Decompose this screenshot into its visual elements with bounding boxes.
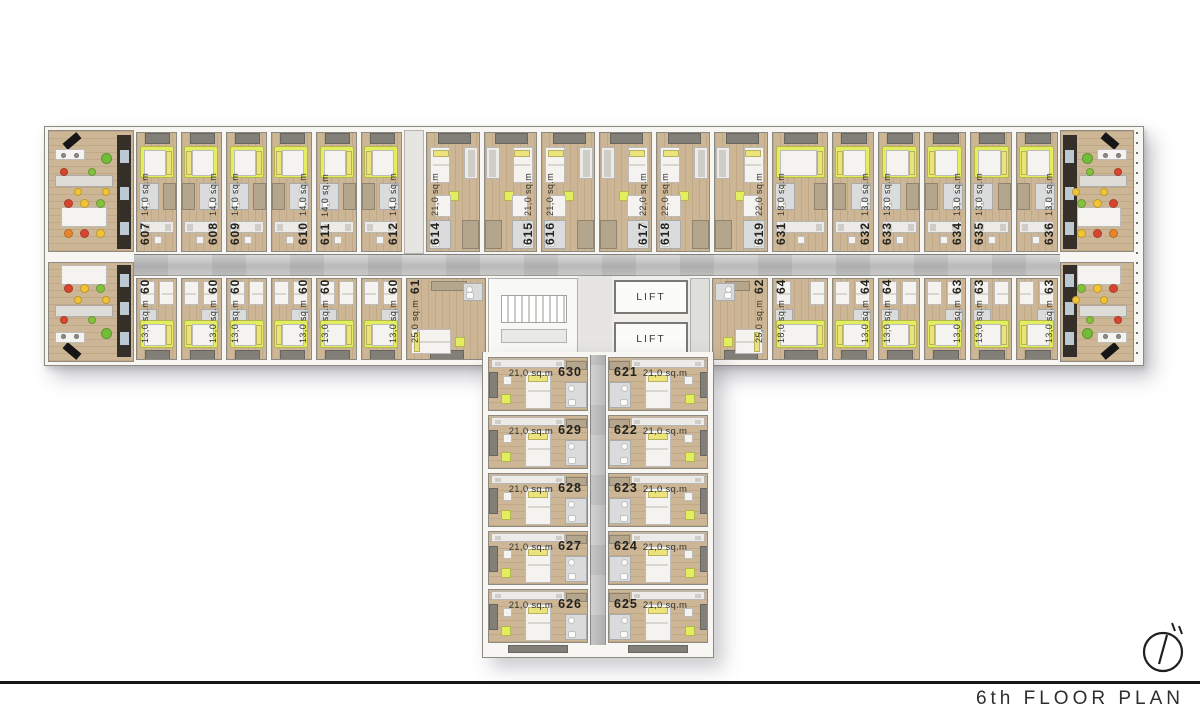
floor-plan-page: 60714,0 sq.m60814,0 sq.m60914,0 sq.m6101… [0,0,1200,719]
room-area: 21,0 sq.m [509,484,553,495]
toilet [568,573,576,580]
room-label: 21,0 sq.m627 [494,539,582,553]
bathroom [609,614,631,640]
room-label: 18,0 sq.m642 [774,282,788,346]
room-616: 61621,0 sq.m [541,132,595,252]
room-area: 13,0 sq.m [230,300,240,343]
room-label: 13,0 sq.m603 [296,282,310,346]
pillow [909,151,915,175]
room-label: 21,0 sq.m630 [494,365,582,379]
side-desk [55,149,85,160]
blanket [646,564,668,566]
chair-dot [1109,199,1118,208]
lift-bank: LIFTLIFT [612,276,690,362]
chair-dot [64,199,73,208]
toilet [620,457,628,464]
long-table [55,175,113,187]
bed [249,281,264,305]
room-label: 13,0 sq.m641 [858,282,872,346]
room-625: 62521,0 sq.m [608,589,708,643]
room-area: 21,0 sq.m [509,426,553,437]
room-label: 13,0 sq.m604 [228,282,242,346]
room-label: 21,0 sq.m629 [494,423,582,437]
bed [274,281,289,305]
horizontal-wing-interior: 60714,0 sq.m60814,0 sq.m60914,0 sq.m6101… [48,130,1140,362]
room-621: 62121,0 sq.m [608,357,708,411]
blanket [342,293,353,295]
wardrobe [577,220,594,249]
desk-item [930,224,936,231]
stem-balcony-recess [508,645,568,653]
room-label: 61822,0 sq.m [658,146,672,248]
chair [940,236,948,244]
dining-table [1077,207,1121,227]
chair [287,236,295,244]
room-number: 638 [972,278,986,294]
lounge-furniture [49,263,133,361]
chair-dot [1077,284,1086,293]
room-number: 629 [558,423,582,437]
pillow [1021,325,1027,345]
floor-plan-title: 6th FLOOR PLAN [976,688,1184,710]
desk-dot [1116,153,1121,158]
blanket [528,622,550,624]
room-area: 21,0 sq.m [545,173,555,216]
room-number: 633 [880,222,894,245]
room-area: 21,0 sq.m [509,600,553,611]
blanket [528,390,550,392]
kitchen-tile [120,332,129,345]
bathroom [463,283,483,301]
room-area: 21,0 sq.m [509,368,553,379]
room-label: 63513,0 sq.m [972,146,986,248]
room-number: 621 [614,365,638,379]
kitchen-tile [1065,302,1074,315]
dining-table [1077,265,1121,285]
desk-item [699,150,705,177]
chair-dot [64,229,73,238]
room-number: 601 [386,278,400,294]
wardrobe [431,281,467,291]
room-624: 62421,0 sq.m [608,531,708,585]
cushion-lime [685,568,695,578]
room-number: 612 [386,222,400,245]
chair-dot [1100,188,1108,196]
desk [716,147,730,179]
room-area: 21,0 sq.m [643,600,687,611]
kitchenette [1063,265,1077,357]
room-label: 62321,0 sq.m [614,481,702,495]
toilet [620,631,628,638]
room-area: 22,0 sq.m [638,173,648,216]
room-number: 617 [636,222,650,245]
chair-dot [64,284,73,293]
room-label: 61521,0 sq.m [521,146,535,248]
kitchen-tile [120,150,129,163]
desk-item [367,224,373,231]
bathroom [565,498,587,524]
plant-ball [1082,328,1093,339]
room-label: 60914,0 sq.m [228,146,242,248]
toilet [620,515,628,522]
pillow [276,151,282,175]
chair-dot [1072,296,1080,304]
service-shaft [690,278,710,360]
room-610: 61014,0 sq.m [271,132,312,252]
room-number: 627 [558,539,582,553]
bed [902,281,917,305]
room-number: 632 [858,222,872,245]
chair-dot [1086,316,1094,324]
room-area: 13,0 sq.m [952,300,962,343]
room-608: 60814,0 sq.m [181,132,222,252]
room-label: 62421,0 sq.m [614,539,702,553]
lounge-furniture [1061,263,1133,361]
desk [579,147,593,179]
vertical-wing-interior: 21,0 sq.m63062121,0 sq.m21,0 sq.m6296222… [486,355,710,654]
pillow [1021,151,1027,175]
room-number: 623 [614,481,638,495]
pillow [837,325,843,345]
blanket [646,506,668,508]
room-617: 61722,0 sq.m [599,132,652,252]
chair-dot [1114,316,1122,324]
wardrobe [906,183,919,210]
toilet [620,399,628,406]
room-number: 615 [521,222,535,245]
entry-hall [404,130,424,254]
room-area: 14,0 sq.m [140,173,150,216]
bed [184,281,199,305]
lounge-furniture [1061,131,1133,251]
lounge-furniture [49,131,133,251]
room-634: 63413,0 sq.m [924,132,966,252]
chair-dot [80,229,89,238]
room-area: 13,0 sq.m [974,300,984,343]
toilet [466,292,474,299]
plant-ball [101,328,112,339]
room-area: 13,0 sq.m [974,173,984,216]
room-label: 63118,0 sq.m [774,146,788,248]
toilet [568,631,576,638]
room-629: 21,0 sq.m629 [488,415,588,469]
pillow [186,325,192,345]
chair-dot [96,199,105,208]
toilet [568,399,576,406]
room-area: 13,0 sq.m [320,300,330,343]
wardrobe [925,183,938,210]
room-label: 21,0 sq.m626 [494,597,582,611]
room-number: 609 [228,222,242,245]
pillow [909,325,915,345]
room-label: 61621,0 sq.m [543,146,557,248]
chair-dot [60,168,68,176]
bed [1019,281,1034,305]
room-633: 63313,0 sq.m [878,132,920,252]
chair-dot [1077,199,1086,208]
bathroom [565,614,587,640]
chair-dot [1109,262,1118,263]
chair-dot [1093,199,1102,208]
kitchenette [117,265,131,357]
sink [621,443,628,450]
desk-item [816,224,822,231]
room-number: 640 [880,278,894,294]
room-605: 13,0 sq.m605 [181,278,222,360]
sink [568,559,575,566]
bench-decor [63,342,82,360]
sink [568,617,575,624]
horizontal-wing: 60714,0 sq.m60814,0 sq.m60914,0 sq.m6101… [44,126,1144,366]
room-number: 628 [558,481,582,495]
lounge-right-bottom [1060,262,1134,362]
room-626: 21,0 sq.m626 [488,589,588,643]
room-number: 607 [138,222,152,245]
cushion-lime [501,626,511,636]
room-label: 61421,0 sq.m [428,146,442,248]
desk-item [187,224,193,231]
room-number: 605 [206,278,220,294]
desk-item [489,150,495,177]
chair-dot [1114,168,1122,176]
room-641: 13,0 sq.m641 [832,278,874,360]
room-area: 13,0 sq.m [882,300,892,343]
room-639: 13,0 sq.m639 [924,278,966,360]
blanket [836,293,847,295]
bathroom [609,440,631,466]
room-642: 18,0 sq.m642 [772,278,828,360]
cushion-lime [723,337,733,347]
room-number: 616 [543,222,557,245]
lift-2: LIFT [614,322,688,356]
room-area: 13,0 sq.m [1044,300,1054,343]
chair-dot [60,316,68,324]
room-label: 21,0 sq.m628 [494,481,582,495]
chair [848,236,856,244]
room-area: 14,0 sq.m [230,173,240,216]
room-label: 13,0 sq.m639 [950,282,964,346]
room-area: 14,0 sq.m [320,174,330,217]
wardrobe [462,220,479,249]
room-number: 642 [774,278,788,294]
chair-dot [74,296,82,304]
chair-dot [96,284,105,293]
room-620: 25,0 sq.m620 [712,278,768,360]
room-area: 25,0 sq.m [754,300,764,343]
chair-dot [102,188,110,196]
bed [364,281,379,305]
stem-balcony-recess [628,645,688,653]
cushion-lime [501,452,511,462]
chair-dot [1109,284,1118,293]
room-number: 614 [428,222,442,245]
room-area: 13,0 sq.m [952,173,962,216]
room-613: 25,0 sq.m613 [406,278,486,360]
chair-dot [1077,229,1086,238]
lounge-left-bottom [48,262,134,362]
pillow [837,151,843,175]
room-area: 25,0 sq.m [410,300,420,343]
room-area: 21,0 sq.m [643,542,687,553]
room-number: 606 [138,278,152,294]
chair [1032,236,1040,244]
chair-dot [96,262,105,263]
wardrobe [600,220,617,249]
pillow [256,325,262,345]
dining-table [61,207,107,227]
room-618: 61822,0 sq.m [656,132,710,252]
room-area: 22,0 sq.m [660,173,670,216]
room-number: 630 [558,365,582,379]
room-area: 13,0 sq.m [1044,173,1054,216]
room-label: 25,0 sq.m620 [752,282,766,346]
pillow [929,325,935,345]
room-601: 13,0 sq.m601 [361,278,402,360]
room-area: 21,0 sq.m [643,484,687,495]
room-number: 610 [296,222,310,245]
core-lobby [578,276,612,362]
room-area: 18,0 sq.m [776,300,786,343]
bed [835,281,850,305]
desk-dot [61,334,66,339]
chair-dot [80,262,89,263]
pillow [346,325,352,345]
room-label: 61014,0 sq.m [296,146,310,248]
blanket [252,293,263,295]
room-637: 13,0 sq.m637 [1016,278,1058,360]
room-606: 13,0 sq.m606 [136,278,177,360]
long-table [55,305,113,317]
sink [568,443,575,450]
room-612: 61214,0 sq.m [361,132,402,252]
chair-dot [1109,229,1118,238]
room-label: 13,0 sq.m602 [318,282,332,346]
room-number: 626 [558,597,582,611]
footer-divider-line [0,681,1200,684]
toilet [568,457,576,464]
wardrobe [1017,183,1030,210]
sink [621,385,628,392]
toilet [724,292,732,299]
room-area: 14,0 sq.m [388,173,398,216]
stair-landing [501,329,567,343]
room-label: 63313,0 sq.m [880,146,894,248]
pillow [166,151,172,175]
blanket [162,293,173,295]
desk-dot [74,334,79,339]
chair-dot [102,296,110,304]
room-area: 13,0 sq.m [882,173,892,216]
chair-dot [96,229,105,238]
room-number: 604 [228,278,242,294]
desk-dot [74,153,79,158]
room-628: 21,0 sq.m628 [488,473,588,527]
toilet [620,573,628,580]
stem-corridor [590,355,606,645]
sink [621,617,628,624]
bathroom [609,382,631,408]
chair-dot [64,262,73,263]
desk-item [165,224,171,231]
pillow [1001,151,1007,175]
kitchen-tile [1065,274,1074,287]
wardrobe [485,220,502,249]
right-balcony-railing [1136,132,1138,360]
chair-dot [1093,284,1102,293]
blanket [646,448,668,450]
pillow [366,325,372,345]
chair-dot [88,316,96,324]
wardrobe [692,220,709,249]
pillow [366,151,372,175]
bed [927,281,942,305]
sink [568,385,575,392]
pillow [256,151,262,175]
desk-item [838,224,844,231]
blanket [905,293,916,295]
blanket [813,293,824,295]
desk-item [604,150,610,177]
long-table [1079,175,1127,187]
cushion-lime [501,510,511,520]
desk-item [584,150,590,177]
chair-dot [88,168,96,176]
blanket [365,293,376,295]
wardrobe [253,183,266,210]
bench-decor [1101,342,1120,360]
room-area: 14,0 sq.m [208,173,218,216]
room-label: 63413,0 sq.m [950,146,964,248]
room-602: 13,0 sq.m602 [316,278,357,360]
desk-item [255,224,261,231]
chair-dot [1100,296,1108,304]
room-number: 622 [614,423,638,437]
room-623: 62321,0 sq.m [608,473,708,527]
cushion-lime [501,394,511,404]
bench-decor [63,132,82,150]
room-number: 636 [1042,222,1056,245]
room-619: 61922,0 sq.m [714,132,768,252]
blanket [928,293,939,295]
bathroom [565,440,587,466]
room-614: 61421,0 sq.m [426,132,480,252]
room-label: 62121,0 sq.m [614,365,702,379]
room-607: 60714,0 sq.m [136,132,177,252]
room-area: 22,0 sq.m [754,173,764,216]
wardrobe [163,183,176,210]
room-area: 21,0 sq.m [430,173,440,216]
side-desk [1097,149,1127,160]
room-label: 13,0 sq.m601 [386,282,400,346]
kitchen-tile [120,222,129,235]
room-number: 641 [858,278,872,294]
room-area: 14,0 sq.m [298,173,308,216]
chair [154,236,162,244]
room-number: 635 [972,222,986,245]
room-area: 21,0 sq.m [643,368,687,379]
wardrobe [362,183,375,210]
bed [159,281,174,305]
cushion-lime [455,337,465,347]
room-number: 624 [614,539,638,553]
room-area: 13,0 sq.m [860,173,870,216]
room-615: 61521,0 sq.m [484,132,537,252]
pillow [346,151,352,175]
chair [377,236,385,244]
chair [334,236,342,244]
desk [486,147,500,179]
desk-item [277,224,283,231]
